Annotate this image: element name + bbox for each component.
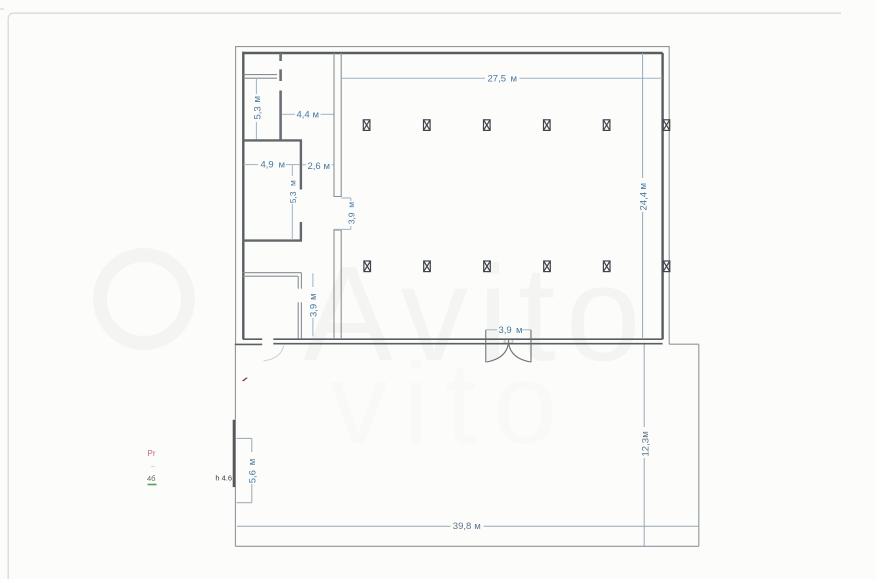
svg-text:м: м xyxy=(474,521,481,532)
svg-text:3,9: 3,9 xyxy=(499,325,512,336)
svg-text:м: м xyxy=(308,293,319,300)
svg-text:6.4.3: 6.4.3 xyxy=(504,339,515,344)
svg-text:4,9: 4,9 xyxy=(261,159,274,170)
svg-text:м: м xyxy=(252,96,263,103)
svg-text:24,4: 24,4 xyxy=(638,192,649,211)
svg-text:м: м xyxy=(287,180,297,186)
svg-text:м: м xyxy=(511,74,518,85)
svg-text:5,3: 5,3 xyxy=(253,106,264,119)
svg-text:м: м xyxy=(247,459,258,466)
svg-text:м: м xyxy=(640,431,651,438)
svg-text:39,8: 39,8 xyxy=(453,521,472,532)
svg-text:м: м xyxy=(313,110,320,121)
svg-text:м: м xyxy=(638,183,649,190)
svg-text:3,9: 3,9 xyxy=(309,304,320,317)
svg-text:Ρr: Ρr xyxy=(148,449,156,458)
svg-text:--: -- xyxy=(151,465,155,471)
svg-text:vito: vito xyxy=(330,340,573,468)
svg-text:4,4: 4,4 xyxy=(297,110,310,121)
svg-text:5,6: 5,6 xyxy=(248,470,259,483)
svg-text:2,6: 2,6 xyxy=(308,161,321,172)
svg-text:12,3: 12,3 xyxy=(640,438,651,457)
svg-text:27,5: 27,5 xyxy=(488,74,507,85)
svg-text:м: м xyxy=(516,325,523,336)
svg-text:h 4.6: h 4.6 xyxy=(215,473,232,482)
svg-text:4б: 4б xyxy=(147,474,155,483)
svg-text:5,3: 5,3 xyxy=(288,191,298,203)
svg-text:м: м xyxy=(346,202,356,208)
svg-text:м: м xyxy=(279,159,286,170)
svg-text:3,9: 3,9 xyxy=(346,212,356,224)
svg-text:м: м xyxy=(324,161,331,172)
